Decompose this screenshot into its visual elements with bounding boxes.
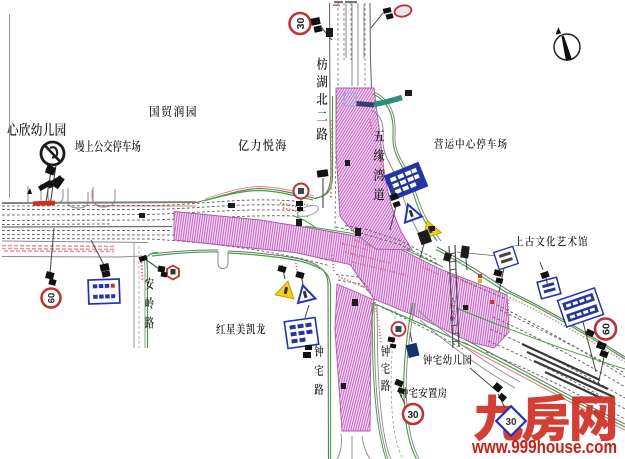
svg-text:60: 60 — [601, 323, 613, 335]
svg-text:30: 30 — [505, 417, 517, 428]
svg-text:30: 30 — [407, 410, 419, 421]
svg-text:www.999house.com: www.999house.com — [471, 437, 617, 457]
svg-text:30: 30 — [295, 18, 307, 30]
svg-text:60: 60 — [47, 293, 58, 304]
